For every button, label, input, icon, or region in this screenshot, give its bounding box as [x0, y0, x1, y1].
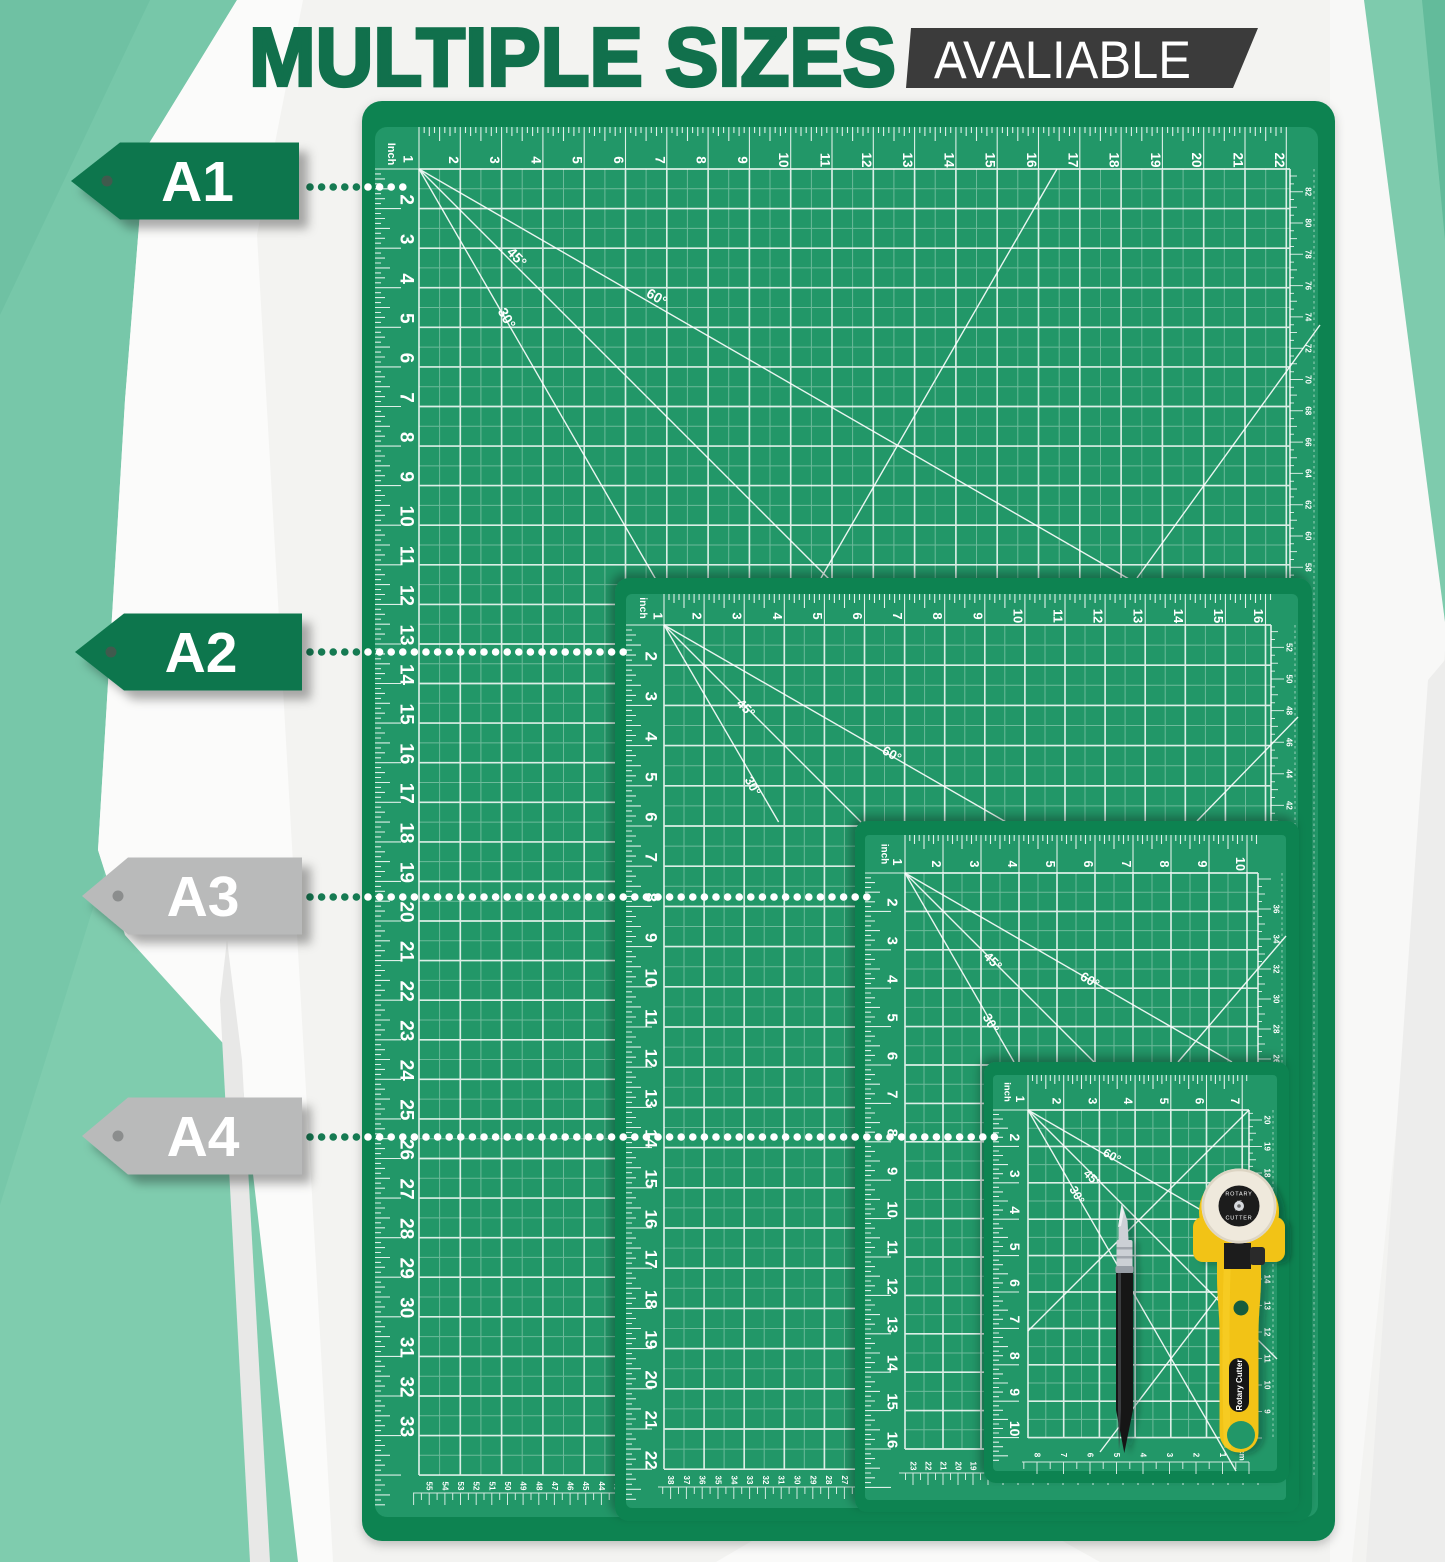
- svg-text:2: 2: [884, 898, 901, 906]
- svg-text:6: 6: [1086, 1453, 1095, 1458]
- svg-text:5: 5: [1157, 1098, 1171, 1105]
- svg-text:14: 14: [941, 152, 956, 168]
- svg-text:16: 16: [1251, 609, 1266, 623]
- svg-text:19: 19: [396, 862, 417, 883]
- svg-text:22: 22: [924, 1462, 933, 1471]
- svg-text:20: 20: [642, 1370, 661, 1389]
- svg-text:13: 13: [884, 1316, 901, 1333]
- svg-text:14: 14: [396, 664, 417, 686]
- svg-text:55: 55: [425, 1482, 434, 1491]
- svg-text:18: 18: [1263, 1169, 1272, 1178]
- svg-text:13: 13: [396, 624, 417, 645]
- svg-text:49: 49: [519, 1482, 528, 1491]
- svg-text:38: 38: [666, 1476, 675, 1485]
- svg-text:28: 28: [396, 1218, 417, 1239]
- svg-text:12: 12: [396, 585, 417, 606]
- svg-text:9: 9: [396, 471, 417, 482]
- svg-text:42: 42: [1285, 801, 1294, 810]
- svg-text:CUTTER: CUTTER: [1225, 1216, 1252, 1222]
- svg-text:5: 5: [642, 772, 661, 781]
- svg-text:inch: inch: [1002, 1082, 1013, 1102]
- svg-text:1: 1: [401, 155, 416, 163]
- svg-text:5: 5: [1112, 1453, 1121, 1458]
- svg-text:2: 2: [929, 861, 943, 868]
- svg-text:46: 46: [1285, 738, 1294, 747]
- svg-text:11: 11: [396, 546, 417, 567]
- svg-text:51: 51: [487, 1482, 496, 1491]
- svg-text:9: 9: [735, 156, 750, 164]
- svg-text:2: 2: [1192, 1453, 1201, 1458]
- svg-text:12: 12: [1263, 1328, 1272, 1337]
- svg-text:37: 37: [682, 1476, 691, 1485]
- svg-text:3: 3: [1165, 1453, 1174, 1458]
- svg-text:34: 34: [1272, 935, 1281, 944]
- svg-text:6: 6: [396, 353, 417, 364]
- svg-text:20: 20: [1263, 1116, 1272, 1125]
- svg-text:3: 3: [487, 156, 502, 164]
- svg-text:7: 7: [396, 392, 417, 403]
- svg-text:15: 15: [396, 704, 417, 726]
- svg-text:19: 19: [1263, 1142, 1272, 1151]
- svg-text:11: 11: [1051, 609, 1066, 623]
- svg-text:33: 33: [396, 1416, 417, 1437]
- svg-text:62: 62: [1304, 500, 1313, 509]
- svg-text:7: 7: [1228, 1098, 1242, 1105]
- svg-text:3: 3: [884, 937, 901, 945]
- svg-text:1: 1: [651, 612, 666, 619]
- svg-text:19: 19: [642, 1330, 661, 1349]
- svg-text:3: 3: [967, 861, 981, 868]
- svg-text:66: 66: [1304, 438, 1313, 447]
- svg-text:20: 20: [1189, 152, 1204, 167]
- svg-text:9: 9: [884, 1167, 901, 1175]
- svg-text:64: 64: [1304, 469, 1313, 478]
- svg-text:5: 5: [1043, 861, 1057, 868]
- svg-text:13: 13: [900, 152, 915, 168]
- svg-text:4: 4: [884, 975, 901, 984]
- svg-text:4: 4: [1007, 1206, 1023, 1214]
- svg-text:8: 8: [1007, 1352, 1023, 1360]
- svg-text:16: 16: [396, 743, 417, 764]
- svg-text:3: 3: [1085, 1098, 1099, 1105]
- svg-text:82: 82: [1304, 187, 1313, 196]
- svg-text:10: 10: [1233, 857, 1247, 871]
- svg-text:17: 17: [1065, 152, 1080, 167]
- svg-text:25: 25: [396, 1099, 417, 1121]
- svg-text:3: 3: [730, 612, 745, 619]
- svg-text:4: 4: [1005, 861, 1019, 868]
- svg-text:7: 7: [642, 852, 661, 861]
- svg-text:36: 36: [1272, 905, 1281, 914]
- svg-text:4: 4: [770, 612, 785, 620]
- svg-text:12: 12: [859, 152, 874, 167]
- svg-text:A1: A1: [161, 150, 234, 214]
- svg-text:A3: A3: [167, 865, 240, 929]
- svg-text:15: 15: [983, 152, 998, 168]
- svg-text:54: 54: [440, 1482, 449, 1491]
- svg-text:11: 11: [642, 1009, 661, 1027]
- svg-text:9: 9: [1263, 1409, 1272, 1414]
- svg-text:8: 8: [930, 612, 945, 619]
- svg-text:9: 9: [1195, 861, 1209, 868]
- svg-text:19: 19: [969, 1462, 978, 1471]
- svg-text:23: 23: [909, 1462, 918, 1471]
- svg-text:15: 15: [642, 1169, 661, 1188]
- svg-text:20: 20: [954, 1462, 963, 1471]
- svg-text:13: 13: [642, 1089, 661, 1108]
- svg-text:16: 16: [642, 1210, 661, 1229]
- svg-text:AVALIABLE: AVALIABLE: [934, 31, 1191, 90]
- svg-text:16: 16: [1024, 152, 1039, 168]
- svg-text:2: 2: [396, 194, 417, 205]
- svg-text:32: 32: [1272, 965, 1281, 974]
- svg-text:21: 21: [642, 1411, 661, 1430]
- svg-text:inch: inch: [637, 597, 649, 619]
- svg-text:28: 28: [1272, 1025, 1281, 1034]
- svg-text:48: 48: [534, 1482, 543, 1491]
- svg-text:28: 28: [824, 1476, 833, 1485]
- svg-text:5: 5: [884, 1013, 901, 1021]
- svg-text:10: 10: [1263, 1381, 1272, 1390]
- svg-text:A4: A4: [167, 1105, 240, 1169]
- svg-text:21: 21: [1231, 152, 1246, 168]
- svg-text:8: 8: [1157, 861, 1171, 868]
- svg-text:22: 22: [642, 1451, 661, 1470]
- svg-text:13: 13: [1131, 609, 1146, 623]
- svg-text:11: 11: [1263, 1354, 1272, 1363]
- svg-text:10: 10: [776, 152, 791, 167]
- svg-text:3: 3: [396, 234, 417, 245]
- svg-text:12: 12: [884, 1278, 901, 1295]
- svg-text:Inch: Inch: [385, 143, 397, 166]
- svg-text:1: 1: [890, 859, 904, 866]
- svg-text:18: 18: [1107, 152, 1122, 168]
- svg-text:6: 6: [611, 156, 626, 164]
- svg-text:5: 5: [1007, 1243, 1023, 1251]
- svg-text:44: 44: [1285, 769, 1294, 778]
- svg-text:34: 34: [729, 1476, 738, 1485]
- svg-text:29: 29: [396, 1258, 417, 1279]
- svg-text:14: 14: [1263, 1275, 1272, 1284]
- svg-text:30: 30: [396, 1297, 417, 1318]
- svg-text:7: 7: [1059, 1453, 1068, 1458]
- svg-text:20: 20: [396, 901, 417, 922]
- svg-text:8: 8: [1033, 1453, 1042, 1458]
- svg-text:27: 27: [840, 1476, 849, 1485]
- svg-text:21: 21: [396, 941, 417, 963]
- svg-text:23: 23: [396, 1020, 417, 1041]
- svg-text:15: 15: [1211, 609, 1226, 623]
- svg-text:2: 2: [1007, 1134, 1023, 1142]
- svg-text:52: 52: [472, 1482, 481, 1491]
- svg-text:6: 6: [1007, 1279, 1023, 1287]
- svg-text:80: 80: [1304, 219, 1313, 228]
- svg-text:18: 18: [642, 1290, 661, 1309]
- svg-text:32: 32: [396, 1376, 417, 1397]
- svg-text:50: 50: [1285, 675, 1294, 684]
- svg-text:4: 4: [1121, 1098, 1135, 1105]
- svg-text:68: 68: [1304, 406, 1313, 415]
- svg-text:3: 3: [1007, 1170, 1023, 1178]
- svg-text:58: 58: [1304, 563, 1313, 572]
- svg-text:24: 24: [396, 1060, 417, 1082]
- svg-text:48: 48: [1285, 706, 1294, 715]
- svg-text:19: 19: [1148, 152, 1163, 167]
- svg-text:7: 7: [1007, 1316, 1023, 1324]
- svg-text:MULTIPLE SIZES: MULTIPLE SIZES: [249, 11, 896, 104]
- svg-text:46: 46: [566, 1482, 575, 1491]
- svg-text:26: 26: [396, 1139, 417, 1160]
- svg-text:7: 7: [1119, 861, 1133, 868]
- svg-text:15: 15: [884, 1393, 901, 1410]
- svg-text:33: 33: [745, 1476, 754, 1485]
- svg-text:5: 5: [570, 156, 585, 164]
- svg-text:5: 5: [396, 313, 417, 324]
- svg-text:9: 9: [970, 612, 985, 619]
- svg-text:35: 35: [714, 1476, 723, 1485]
- svg-text:3: 3: [642, 692, 661, 701]
- svg-text:1: 1: [1013, 1096, 1027, 1103]
- svg-text:32: 32: [761, 1476, 770, 1485]
- svg-text:14: 14: [1171, 609, 1186, 624]
- svg-text:76: 76: [1304, 281, 1313, 290]
- svg-text:22: 22: [1272, 152, 1287, 167]
- svg-text:30: 30: [793, 1476, 802, 1485]
- svg-text:2: 2: [642, 651, 661, 660]
- svg-text:30: 30: [1272, 995, 1281, 1004]
- svg-text:17: 17: [396, 783, 417, 804]
- svg-text:6: 6: [1193, 1098, 1207, 1105]
- svg-text:70: 70: [1304, 375, 1313, 384]
- svg-text:12: 12: [642, 1049, 661, 1068]
- svg-text:45: 45: [581, 1482, 590, 1491]
- svg-text:4: 4: [1139, 1453, 1148, 1458]
- svg-text:7: 7: [890, 612, 905, 619]
- svg-text:10: 10: [1010, 609, 1025, 623]
- svg-text:78: 78: [1304, 250, 1313, 259]
- svg-text:2: 2: [1050, 1098, 1064, 1105]
- svg-text:2: 2: [690, 612, 705, 619]
- svg-text:10: 10: [1007, 1421, 1023, 1437]
- svg-text:4: 4: [396, 273, 417, 284]
- svg-text:31: 31: [777, 1476, 786, 1485]
- svg-text:4: 4: [528, 156, 543, 164]
- svg-text:inch: inch: [879, 844, 890, 865]
- svg-text:A2: A2: [165, 621, 238, 685]
- svg-text:11: 11: [884, 1240, 901, 1256]
- svg-text:7: 7: [652, 156, 667, 164]
- svg-text:18: 18: [396, 822, 417, 843]
- svg-text:74: 74: [1304, 312, 1313, 321]
- svg-text:11: 11: [818, 153, 833, 168]
- svg-text:60: 60: [1304, 532, 1313, 541]
- svg-text:4: 4: [642, 732, 661, 742]
- svg-text:8: 8: [694, 156, 709, 164]
- svg-text:14: 14: [884, 1355, 901, 1372]
- svg-text:47: 47: [550, 1482, 559, 1491]
- svg-text:2: 2: [446, 156, 461, 164]
- svg-text:10: 10: [884, 1201, 901, 1218]
- svg-text:21: 21: [939, 1462, 948, 1471]
- svg-text:8: 8: [396, 432, 417, 443]
- svg-text:50: 50: [503, 1482, 512, 1491]
- svg-text:6: 6: [850, 612, 865, 619]
- svg-text:Rotary Cutter: Rotary Cutter: [1235, 1359, 1244, 1410]
- svg-text:53: 53: [456, 1482, 465, 1491]
- svg-text:17: 17: [642, 1250, 661, 1269]
- svg-text:7: 7: [884, 1090, 901, 1098]
- svg-text:36: 36: [698, 1476, 707, 1485]
- svg-text:9: 9: [642, 933, 661, 942]
- svg-text:5: 5: [810, 612, 825, 619]
- svg-text:6: 6: [1081, 861, 1095, 868]
- svg-text:12: 12: [1091, 609, 1106, 623]
- svg-text:16: 16: [884, 1432, 901, 1449]
- svg-text:ROTARY: ROTARY: [1225, 1192, 1252, 1198]
- svg-text:22: 22: [396, 981, 417, 1002]
- svg-text:52: 52: [1285, 643, 1294, 652]
- svg-text:10: 10: [396, 506, 417, 527]
- svg-text:27: 27: [396, 1179, 417, 1200]
- svg-text:44: 44: [597, 1482, 606, 1491]
- svg-text:6: 6: [884, 1052, 901, 1060]
- svg-text:10: 10: [642, 968, 661, 987]
- svg-text:29: 29: [808, 1476, 817, 1485]
- svg-text:6: 6: [642, 812, 661, 821]
- svg-text:9: 9: [1007, 1388, 1023, 1396]
- svg-text:31: 31: [396, 1337, 417, 1359]
- svg-text:13: 13: [1263, 1301, 1272, 1310]
